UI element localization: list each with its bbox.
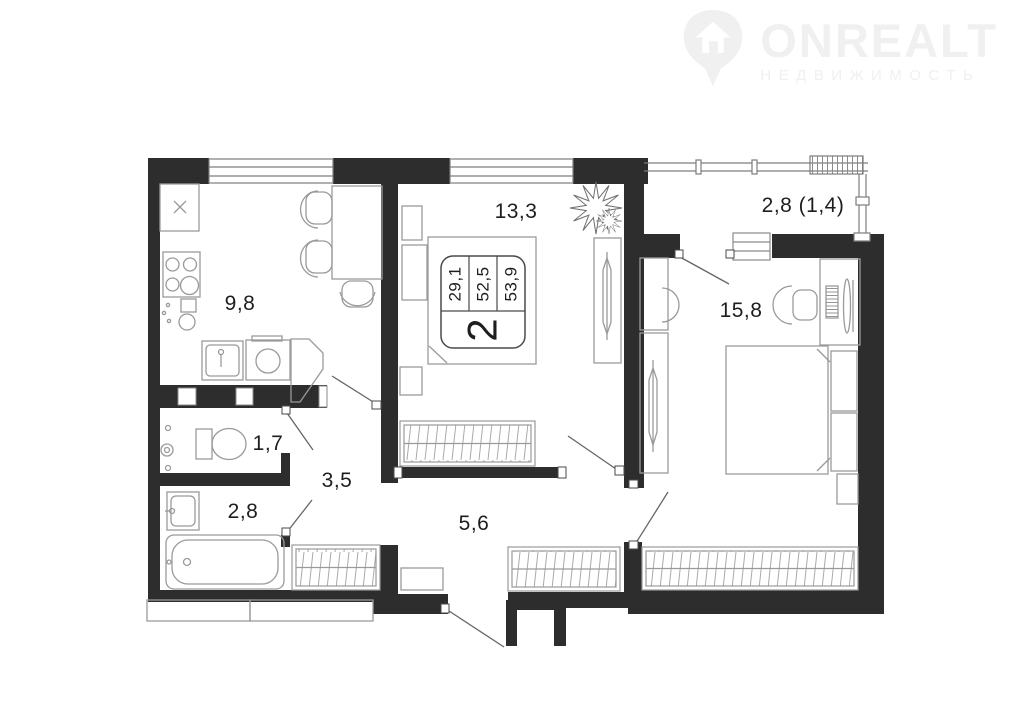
nightstand [402, 245, 427, 300]
kitchen-chair [301, 240, 332, 277]
info-total-area: 53,9 [502, 266, 521, 301]
nightstand [402, 206, 422, 240]
balcony-door-swing [680, 257, 729, 284]
stove [163, 252, 200, 297]
bedroom-nightstand [837, 474, 858, 504]
desk [820, 259, 860, 345]
kitchen-door-swing [332, 376, 378, 405]
bathtub [166, 535, 284, 589]
bath-door-swing [287, 500, 312, 532]
info-living-area: 29,1 [446, 266, 465, 301]
stairwell-outline [147, 600, 250, 621]
kitchen-chair [340, 281, 375, 307]
corridor-wardrobe [508, 547, 620, 591]
washing-machine [246, 336, 290, 380]
bedroom-cabinet [640, 258, 679, 330]
room-label-balcony: 2,8 (1,4) [762, 194, 845, 217]
wardrobes [292, 421, 858, 591]
floor-plan-page: ONREALT НЕДВИЖИМОСТЬ [0, 0, 1024, 718]
desk-chair [773, 286, 817, 324]
room-label-bath: 2,8 [228, 500, 259, 523]
living-wardrobe [400, 421, 535, 466]
bedroom-wardrobe [642, 547, 858, 590]
room-label-living: 13,3 [495, 200, 538, 223]
entrance-door-swing [449, 611, 504, 647]
kitchen-table [332, 186, 382, 279]
stairwell-outline [250, 600, 373, 621]
living-door-swing [568, 436, 616, 469]
room-label-bedroom: 15,8 [720, 299, 763, 322]
info-box: 29,1 52,5 53,9 2 [441, 256, 525, 348]
double-bed [726, 346, 857, 474]
room-label-kitchen: 9,8 [225, 292, 256, 315]
hall-wardrobe [292, 545, 380, 590]
wc-door-swing [287, 413, 313, 450]
living-mirror-cabinet [594, 238, 621, 363]
kitchen-cabinet-x [160, 184, 199, 231]
balcony-dresser [733, 233, 770, 260]
kitchen-deco [162, 299, 196, 330]
plumbing-stack [161, 426, 173, 471]
living-window [450, 159, 573, 183]
info-rooms-count: 2 [459, 318, 506, 341]
kitchen-chair [301, 191, 332, 228]
kitchen-window [209, 159, 333, 183]
room-label-corridor: 5,6 [459, 512, 490, 535]
nightstand [400, 367, 422, 395]
bedroom-door-swing [634, 492, 668, 546]
bath-sink [165, 492, 199, 530]
room-label-wc: 1,7 [253, 432, 284, 455]
kitchen-furniture [160, 184, 382, 402]
bedroom-mirror-cabinet [640, 333, 668, 473]
plant-icon [570, 182, 622, 234]
shoe-cabinet [401, 568, 443, 590]
info-area-no-balcony: 52,5 [474, 266, 493, 301]
floor-plan: 29,1 52,5 53,9 2 [0, 0, 1024, 718]
toilet [196, 429, 246, 460]
kitchen-sink [202, 341, 243, 380]
room-label-hall: 3,5 [322, 469, 353, 492]
bedroom-furniture [640, 258, 860, 504]
